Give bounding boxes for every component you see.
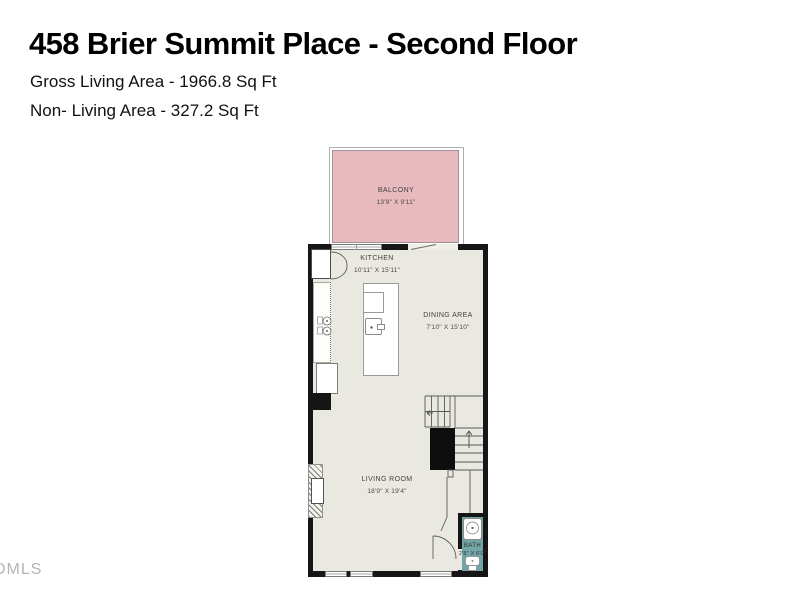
island-faucet: [377, 324, 385, 330]
room-name: KITCHEN: [332, 255, 422, 262]
non-living-area-text: Non- Living Area - 327.2 Sq Ft: [30, 101, 259, 121]
fireplace-firebox: [311, 478, 324, 504]
room-name: LIVING ROOM: [342, 476, 432, 483]
living-room-window-3: [420, 571, 452, 577]
watermark-text: DMLS: [0, 561, 42, 579]
living-room-label: LIVING ROOM 18'9" X 19'4": [342, 476, 432, 495]
room-dimensions: 10'11" X 15'11": [332, 267, 422, 274]
room-dimensions: 2'8" X 6'0": [450, 551, 495, 557]
room-name: BATH: [450, 543, 495, 549]
room-dimensions: 18'9" X 19'4": [342, 488, 432, 495]
dining-area-label: DINING AREA 7'10" X 15'10": [403, 312, 493, 331]
kitchen-window: [331, 244, 382, 250]
room-dimensions: 13'9" X 9'11": [351, 199, 441, 206]
pantry-closet: [311, 249, 331, 279]
kitchen-counter: [313, 282, 331, 363]
stairwell-void: [430, 428, 455, 470]
floorplan-page: 458 Brier Summit Place - Second Floor Gr…: [0, 0, 800, 600]
living-room-window-1: [325, 571, 347, 577]
page-title: 458 Brier Summit Place - Second Floor: [29, 26, 577, 62]
bath-label: BATH 2'8" X 6'0": [450, 543, 495, 557]
room-dimensions: 7'10" X 15'10": [403, 324, 493, 331]
refrigerator: [316, 363, 338, 394]
balcony-label: BALCONY 13'9" X 9'11": [351, 187, 441, 206]
gross-living-area-text: Gross Living Area - 1966.8 Sq Ft: [30, 72, 277, 92]
balcony-door-opening: [408, 244, 458, 250]
island-cabinet: [363, 292, 384, 313]
interior-wall-block: [308, 393, 331, 410]
kitchen-label: KITCHEN 10'11" X 15'11": [332, 255, 422, 274]
room-name: DINING AREA: [403, 312, 493, 319]
living-room-window-2: [350, 571, 373, 577]
room-name: BALCONY: [351, 187, 441, 194]
bath-sink: [463, 518, 482, 540]
